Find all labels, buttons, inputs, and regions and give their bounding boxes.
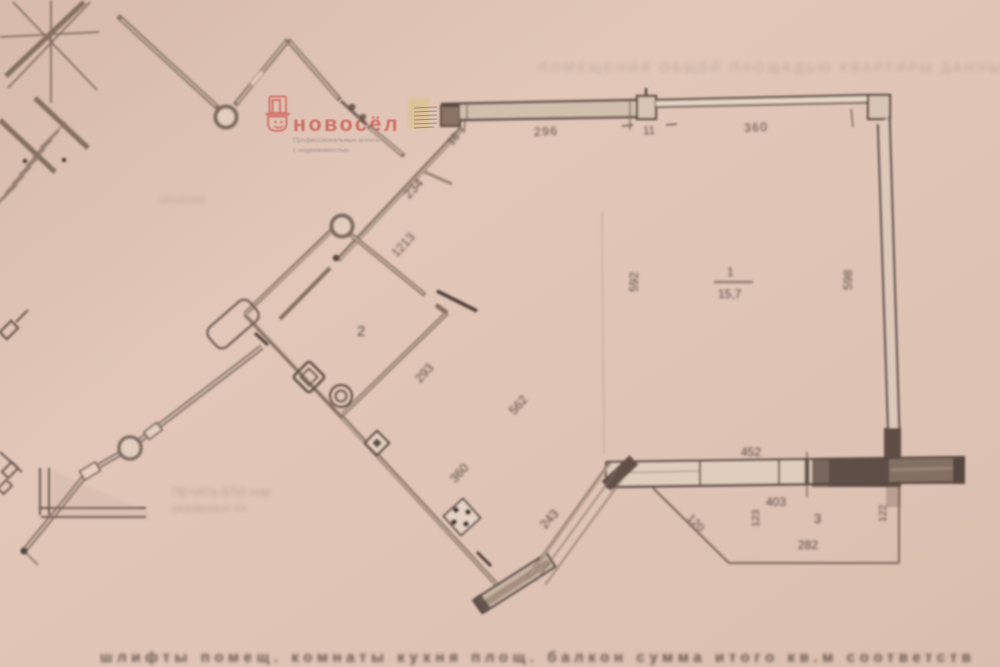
svg-text:Профессиональные агенты: Профессиональные агенты: [293, 137, 380, 144]
svg-text:11: 11: [643, 125, 656, 138]
svg-text:решение: решение: [160, 194, 206, 206]
svg-text:указанных пл: указанных пл: [172, 501, 247, 515]
svg-text:шлифты помещ. комнаты кухня пл: шлифты помещ. комнаты кухня площ. балкон…: [100, 649, 976, 666]
svg-text:2: 2: [357, 323, 365, 340]
svg-text:452: 452: [741, 445, 761, 459]
svg-text:122: 122: [877, 504, 889, 522]
svg-text:360: 360: [744, 120, 769, 135]
svg-text:3: 3: [814, 511, 821, 526]
svg-text:ПЕЧАТЬ БТИ ном: ПЕЧАТЬ БТИ ном: [172, 485, 270, 499]
svg-text:123: 123: [750, 509, 762, 527]
svg-text:новосёл: новосёл: [293, 112, 400, 136]
svg-text:282: 282: [798, 538, 818, 552]
svg-text:с недвижимостью: с недвижимостью: [293, 147, 349, 154]
svg-text:403: 403: [766, 495, 786, 509]
svg-text:592: 592: [627, 272, 641, 292]
svg-text:15,7: 15,7: [718, 287, 742, 301]
svg-text:1: 1: [727, 265, 734, 279]
svg-text:296: 296: [534, 124, 559, 139]
svg-text:ПОМЕЩЕНИЯ ОБЩЕЙ ПЛОЩАДЬЮ КВ: ПОМЕЩЕНИЯ ОБЩЕЙ ПЛОЩАДЬЮ КВАРТИРЫ ДАННЫМ: [538, 60, 1000, 75]
svg-text:598: 598: [841, 270, 855, 290]
